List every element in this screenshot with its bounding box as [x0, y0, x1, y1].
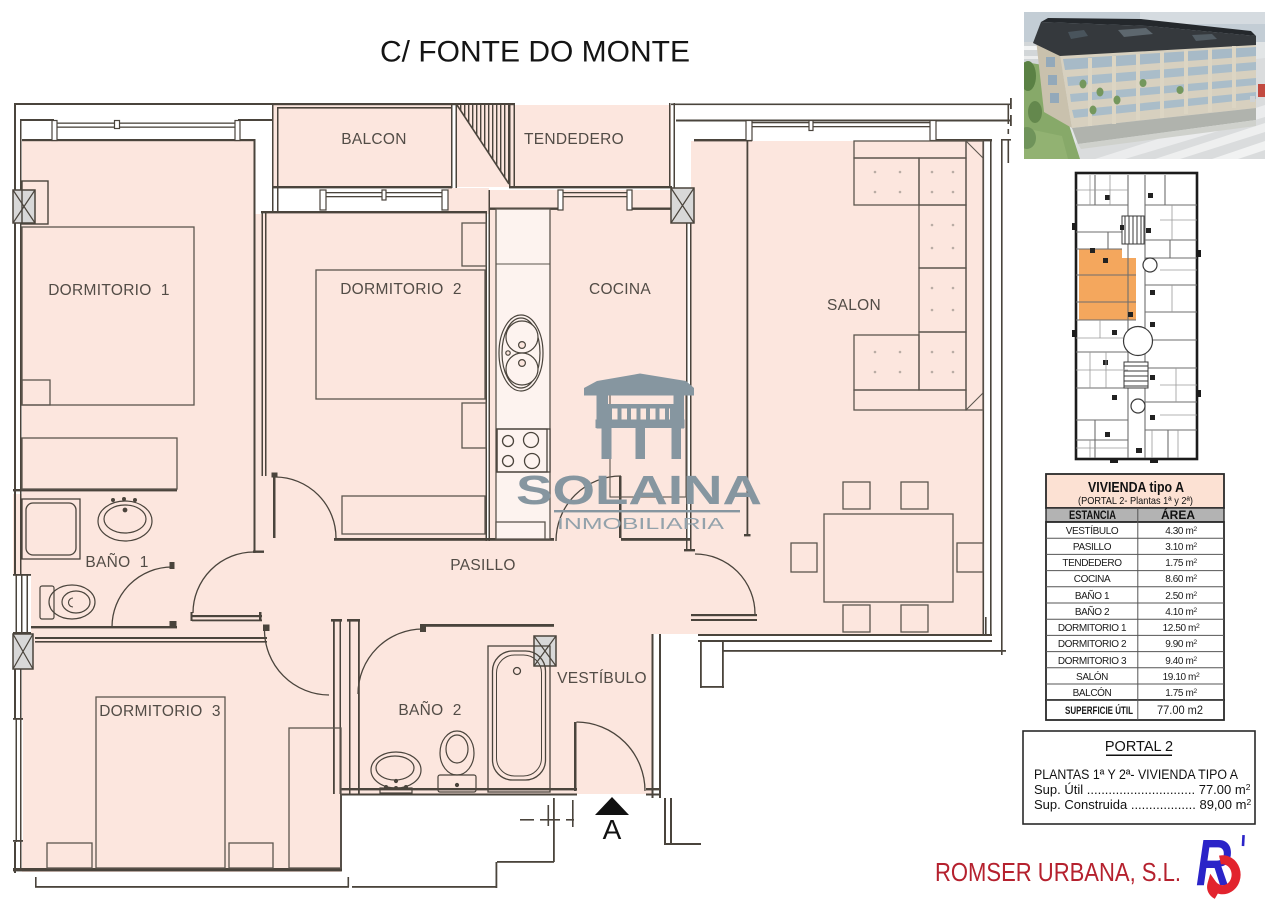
svg-text:INMOBILIARIA: INMOBILIARIA: [557, 516, 725, 533]
svg-text:1.75 m2: 1.75 m2: [1165, 558, 1197, 569]
svg-text:8.60 m2: 8.60 m2: [1165, 574, 1197, 585]
svg-text:4.30 m2: 4.30 m2: [1165, 526, 1197, 537]
svg-text:DORMITORIO 2: DORMITORIO 2: [1058, 639, 1127, 650]
svg-text:BAÑO 2: BAÑO 2: [398, 702, 461, 719]
svg-text:A: A: [603, 814, 622, 845]
svg-text:ROMSER URBANA, S.L.: ROMSER URBANA, S.L.: [935, 857, 1181, 887]
svg-text:COCINA: COCINA: [589, 281, 651, 298]
svg-text:ESTANCIA: ESTANCIA: [1069, 510, 1116, 522]
svg-text:PLANTAS 1ª Y 2ª- VIVIENDA TIPO: PLANTAS 1ª Y 2ª- VIVIENDA TIPO A: [1034, 767, 1238, 782]
svg-text:9.90 m2: 9.90 m2: [1165, 639, 1197, 650]
svg-text:9.40 m2: 9.40 m2: [1165, 656, 1197, 667]
svg-text:BALCÓN: BALCÓN: [1073, 686, 1112, 699]
svg-text:(PORTAL 2- Plantas 1ª y 2ª): (PORTAL 2- Plantas 1ª y 2ª): [1078, 495, 1193, 507]
svg-text:SUPERFICIE ÚTIL: SUPERFICIE ÚTIL: [1065, 704, 1133, 717]
svg-text:PORTAL 2: PORTAL 2: [1105, 739, 1173, 755]
svg-text:C/ FONTE DO MONTE: C/ FONTE DO MONTE: [380, 36, 690, 69]
svg-text:VIVIENDA tipo A: VIVIENDA tipo A: [1088, 479, 1184, 496]
svg-text:BAÑO 1: BAÑO 1: [85, 554, 148, 571]
svg-text:4.10 m2: 4.10 m2: [1165, 607, 1197, 618]
svg-text:PASILLO: PASILLO: [1073, 542, 1112, 553]
svg-text:ÁREA: ÁREA: [1161, 509, 1195, 522]
svg-text:VESTÍBULO: VESTÍBULO: [1066, 524, 1119, 537]
svg-text:VESTÍBULO: VESTÍBULO: [557, 670, 647, 687]
svg-text:SALON: SALON: [827, 297, 881, 314]
svg-text:DORMITORIO 3: DORMITORIO 3: [99, 703, 221, 720]
svg-text:DORMITORIO 1: DORMITORIO 1: [48, 282, 170, 299]
svg-text:19.10 m2: 19.10 m2: [1163, 672, 1200, 683]
svg-text:BAÑO 1: BAÑO 1: [1075, 589, 1110, 602]
svg-text:3.10 m2: 3.10 m2: [1165, 542, 1197, 553]
svg-text:Sup. Útil ....................: Sup. Útil ..............................…: [1034, 782, 1251, 797]
svg-text:DORMITORIO 2: DORMITORIO 2: [340, 281, 462, 298]
svg-text:COCINA: COCINA: [1074, 574, 1111, 585]
svg-text:SOLAINA: SOLAINA: [516, 467, 762, 513]
svg-text:Sup. Construida ..............: Sup. Construida .................. 89,00…: [1034, 797, 1251, 812]
svg-text:TENDEDERO: TENDEDERO: [524, 131, 624, 148]
svg-text:1.75 m2: 1.75 m2: [1165, 688, 1197, 699]
svg-text:12.50 m2: 12.50 m2: [1163, 623, 1200, 634]
svg-text:DORMITORIO 3: DORMITORIO 3: [1058, 656, 1127, 667]
svg-text:PASILLO: PASILLO: [450, 557, 516, 574]
svg-text:TENDEDERO: TENDEDERO: [1062, 558, 1122, 569]
svg-text:BALCON: BALCON: [341, 131, 407, 148]
svg-text:BAÑO 2: BAÑO 2: [1075, 605, 1110, 618]
svg-text:DORMITORIO 1: DORMITORIO 1: [1058, 623, 1127, 634]
svg-text:2.50 m2: 2.50 m2: [1165, 591, 1197, 602]
svg-text:77.00 m2: 77.00 m2: [1157, 705, 1203, 717]
svg-text:SALÓN: SALÓN: [1076, 670, 1108, 683]
